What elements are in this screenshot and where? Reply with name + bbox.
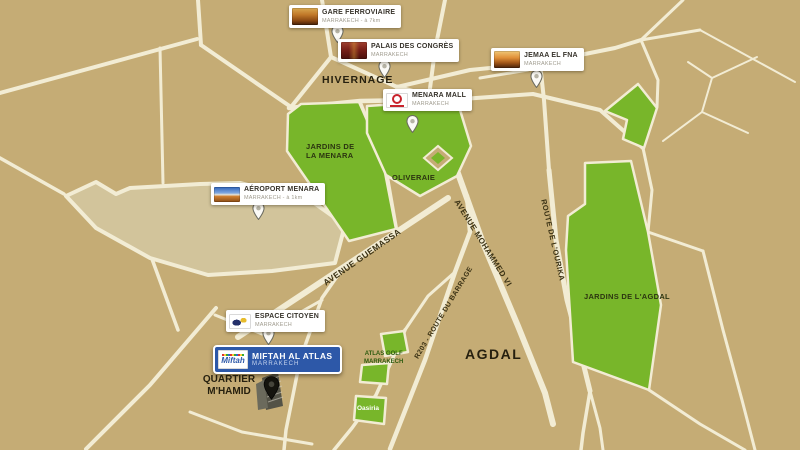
- pin-jemaa-el-fna[interactable]: [530, 70, 543, 88]
- road: [0, 39, 197, 93]
- marker-card-jemaa-el-fna[interactable]: JEMAA EL FNA MARRAKECH: [491, 48, 584, 71]
- card-subtitle: MARRAKECH: [412, 101, 466, 108]
- aeroport-photo-thumbnail: [214, 187, 240, 202]
- card-subtitle: MARRAKECH - à 1km: [244, 195, 319, 202]
- quartier-line1: QUARTIER: [196, 374, 262, 386]
- park-atlas-golf-south: [360, 363, 389, 384]
- road: [663, 78, 712, 141]
- card-subtitle: MARRAKECH: [252, 361, 332, 368]
- label-atlas-golf: ATLAS GOLF MARRAKECH: [364, 351, 403, 366]
- marrakech-location-map: AVENUE GUEMASSA AVENUE MOHAMMED VI R203 …: [0, 0, 800, 450]
- card-subtitle: MARRAKECH: [371, 52, 453, 59]
- marker-card-miftah-al-atlas[interactable]: Miftah MIFTAH AL ATLAS MARRAKECH: [213, 345, 342, 374]
- card-title: MENARA MALL: [412, 92, 466, 100]
- card-title: AÉROPORT MENARA: [244, 186, 319, 194]
- road: [649, 390, 745, 450]
- card-text: ESPACE CITOYEN MARRAKECH: [255, 313, 319, 329]
- jardins-menara-line1: JARDINS DE: [306, 142, 354, 151]
- atlas-golf-line1: ATLAS GOLF: [364, 351, 403, 359]
- park-label-jardins-agdal: JARDINS DE L'AGDAL: [584, 292, 670, 301]
- card-subtitle: MARRAKECH: [524, 61, 578, 68]
- card-text: PALAIS DES CONGRÈS MARRAKECH: [371, 43, 453, 59]
- gare-photo-thumbnail: [292, 8, 318, 25]
- green-zones: [287, 84, 661, 424]
- card-text: MIFTAH AL ATLAS MARRAKECH: [252, 352, 332, 368]
- palais-photo-thumbnail: [341, 42, 367, 59]
- region-label-quartier-mhamid: QUARTIER M'HAMID: [196, 374, 262, 398]
- road: [0, 158, 64, 194]
- card-title: PALAIS DES CONGRÈS: [371, 43, 453, 51]
- miftah-logo-word: Miftah: [221, 357, 245, 365]
- card-title: GARE FERROVIAIRE: [322, 9, 395, 17]
- road: [581, 391, 590, 450]
- park-label-jardins-menara: JARDINS DE LA MENARA: [306, 142, 354, 160]
- road: [590, 391, 603, 450]
- road: [160, 48, 163, 183]
- road: [688, 57, 757, 78]
- quartier-line2: M'HAMID: [196, 386, 262, 398]
- card-subtitle: MARRAKECH - à 7km: [322, 18, 395, 25]
- marker-card-palais-des-congres[interactable]: PALAIS DES CONGRÈS MARRAKECH: [338, 39, 459, 62]
- miftah-logo: Miftah: [218, 350, 248, 369]
- road: [201, 45, 291, 107]
- jardins-menara-line2: LA MENARA: [306, 151, 354, 160]
- atlas-golf-line2: MARRAKECH: [364, 359, 403, 367]
- menara-mall-ring-icon: [392, 94, 402, 104]
- card-text: JEMAA EL FNA MARRAKECH: [524, 52, 578, 68]
- marker-card-aeroport-menara[interactable]: AÉROPORT MENARA MARRAKECH - à 1km: [211, 183, 325, 205]
- park-jardins-agdal: [566, 161, 661, 390]
- road: [648, 232, 703, 251]
- road: [702, 112, 748, 133]
- map-canvas: [0, 0, 800, 450]
- espace-citoyen-logo: [229, 314, 251, 329]
- pin-miftah-al-atlas[interactable]: [263, 376, 280, 400]
- label-oasiria: Oasiria: [357, 405, 379, 412]
- card-text: GARE FERROVIAIRE MARRAKECH - à 7km: [322, 9, 395, 25]
- pin-palais-des-congres[interactable]: [378, 60, 391, 78]
- marker-card-espace-citoyen[interactable]: ESPACE CITOYEN MARRAKECH: [226, 310, 325, 332]
- card-text: MENARA MALL MARRAKECH: [412, 92, 466, 108]
- card-subtitle: MARRAKECH: [255, 322, 319, 329]
- road: [700, 30, 795, 82]
- menara-mall-logo-bar: [390, 105, 404, 107]
- road: [152, 259, 178, 330]
- marker-card-gare-ferroviaire[interactable]: GARE FERROVIAIRE MARRAKECH - à 7km: [289, 5, 401, 28]
- jemaa-photo-thumbnail: [494, 51, 520, 68]
- card-title: MIFTAH AL ATLAS: [252, 352, 332, 360]
- card-title: JEMAA EL FNA: [524, 52, 578, 60]
- card-text: AÉROPORT MENARA MARRAKECH - à 1km: [244, 186, 319, 202]
- park-label-oliveraie: OLIVERAIE: [392, 173, 435, 182]
- road: [190, 412, 312, 444]
- menara-mall-logo: [386, 93, 408, 108]
- road: [703, 251, 755, 450]
- marker-card-menara-mall[interactable]: MENARA MALL MARRAKECH: [383, 89, 472, 111]
- card-title: ESPACE CITOYEN: [255, 313, 319, 321]
- region-label-agdal: AGDAL: [465, 346, 522, 362]
- park-northeast: [605, 84, 657, 148]
- pin-menara-mall[interactable]: [406, 115, 419, 133]
